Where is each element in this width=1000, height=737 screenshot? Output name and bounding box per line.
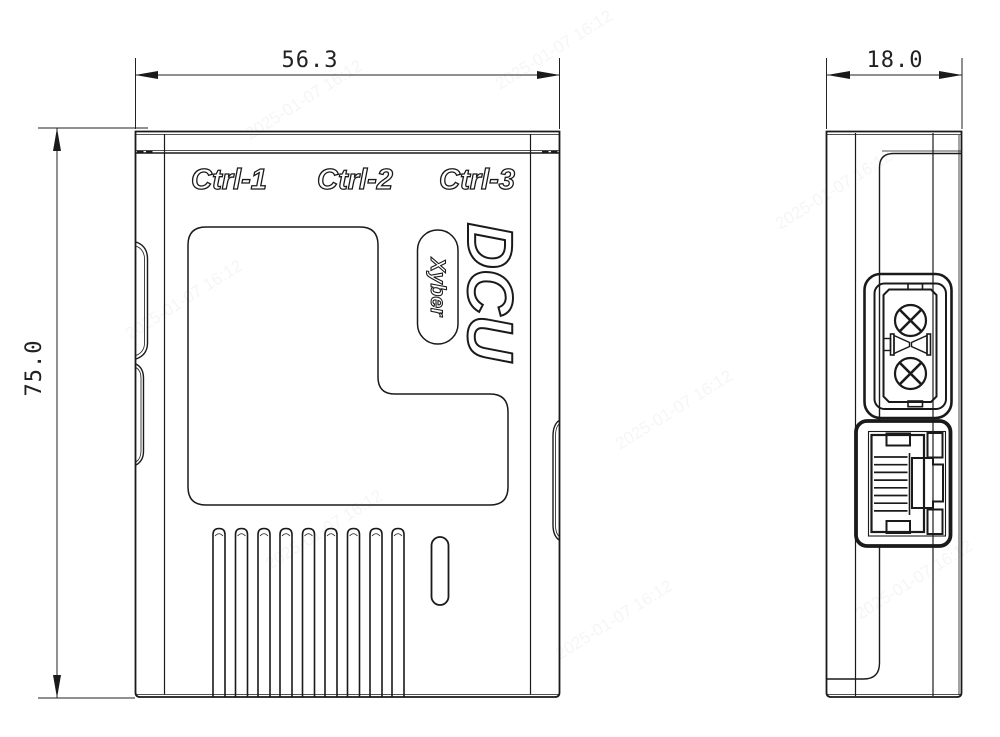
arrowhead-down <box>53 675 61 698</box>
watermark-text: 2025-01-07 16:12 <box>612 366 736 453</box>
port-label-ctrl1: Ctrl-1 <box>191 164 267 196</box>
vent-slots <box>213 529 404 697</box>
front-height-value: 75.0 <box>22 340 47 397</box>
port-label-ctrl3: Ctrl-3 <box>439 164 515 196</box>
dimension-front-height: 75.0 <box>22 128 148 698</box>
arrowhead-left <box>827 71 850 79</box>
side-body-outline <box>827 132 962 698</box>
watermark-text: 2025-01-07 16:12 <box>492 6 616 93</box>
arrowhead-right <box>939 71 962 79</box>
dimension-side-depth: 18.0 <box>827 48 963 129</box>
watermark-text: 2025-01-07 16:12 <box>772 146 896 233</box>
left-edge-tabs <box>136 242 148 465</box>
arrowhead-left <box>135 71 158 79</box>
technical-drawing: 2025-01-07 16:12 2025-01-07 16:12 2025-0… <box>0 0 1000 737</box>
xt30-pin-top <box>895 305 926 336</box>
right-edge-tab <box>553 421 559 541</box>
watermark-layer: 2025-01-07 16:12 2025-01-07 16:12 2025-0… <box>122 6 976 663</box>
front-width-value: 56.3 <box>282 48 339 73</box>
rj45-contact-pins <box>874 453 910 515</box>
watermark-text: 2025-01-07 16:12 <box>852 536 976 623</box>
brand-text: Xyber <box>426 257 449 318</box>
watermark-text: 2025-01-07 16:12 <box>122 256 246 343</box>
dimension-front-width: 56.3 <box>135 48 560 129</box>
reset-slot <box>432 537 449 605</box>
rj45-latch-slot <box>912 458 943 508</box>
product-name-text: DCU <box>454 223 526 363</box>
drawing-canvas: 2025-01-07 16:12 2025-01-07 16:12 2025-0… <box>0 0 1000 737</box>
port-labels: Ctrl-1 Ctrl-2 Ctrl-3 <box>191 164 515 196</box>
arrowhead-right <box>537 71 560 79</box>
xt30-keying-feature <box>884 334 931 355</box>
xt30-power-connector <box>865 274 952 418</box>
port-label-ctrl2: Ctrl-2 <box>317 164 393 196</box>
side-depth-value: 18.0 <box>867 48 924 73</box>
brand-badge: Xyber <box>418 230 459 344</box>
xt30-pin-bottom <box>895 358 926 389</box>
side-view <box>827 132 962 698</box>
rj45-opening <box>872 435 925 532</box>
watermark-text: 2025-01-07 16:12 <box>552 576 676 663</box>
arrowhead-up <box>53 128 61 151</box>
front-view: Ctrl-1 Ctrl-2 Ctrl-3 Xyber DCU <box>136 132 560 698</box>
rj45-ethernet-port <box>856 421 951 546</box>
